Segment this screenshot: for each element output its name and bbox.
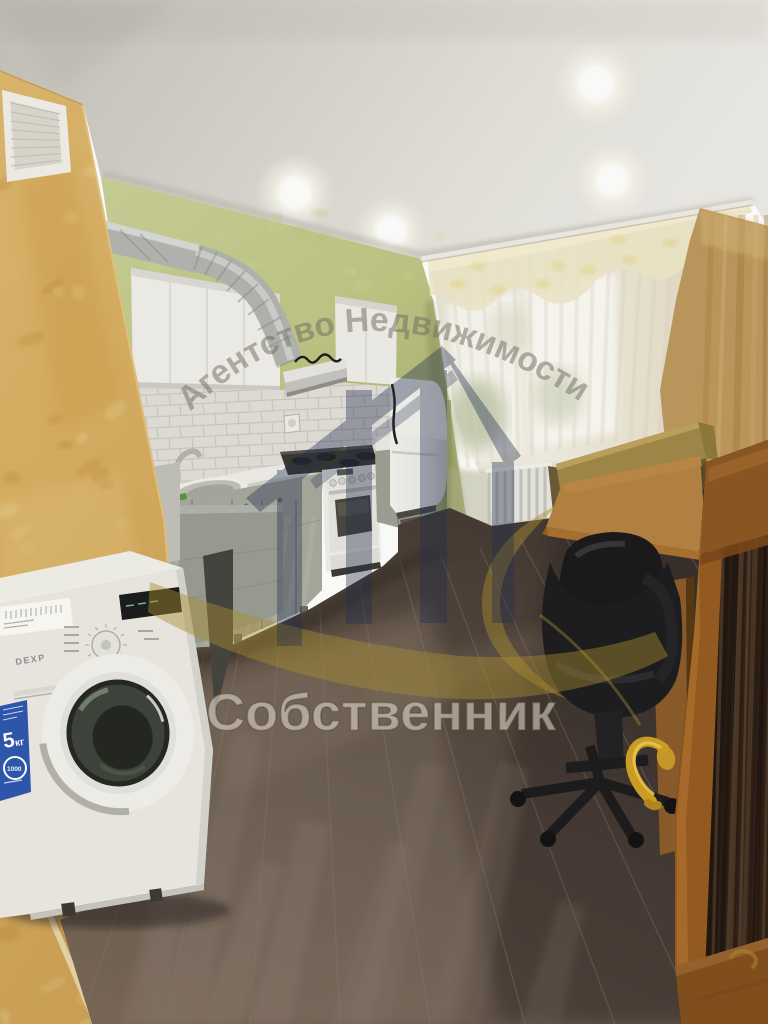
svg-text:Собственник: Собственник xyxy=(206,684,557,742)
